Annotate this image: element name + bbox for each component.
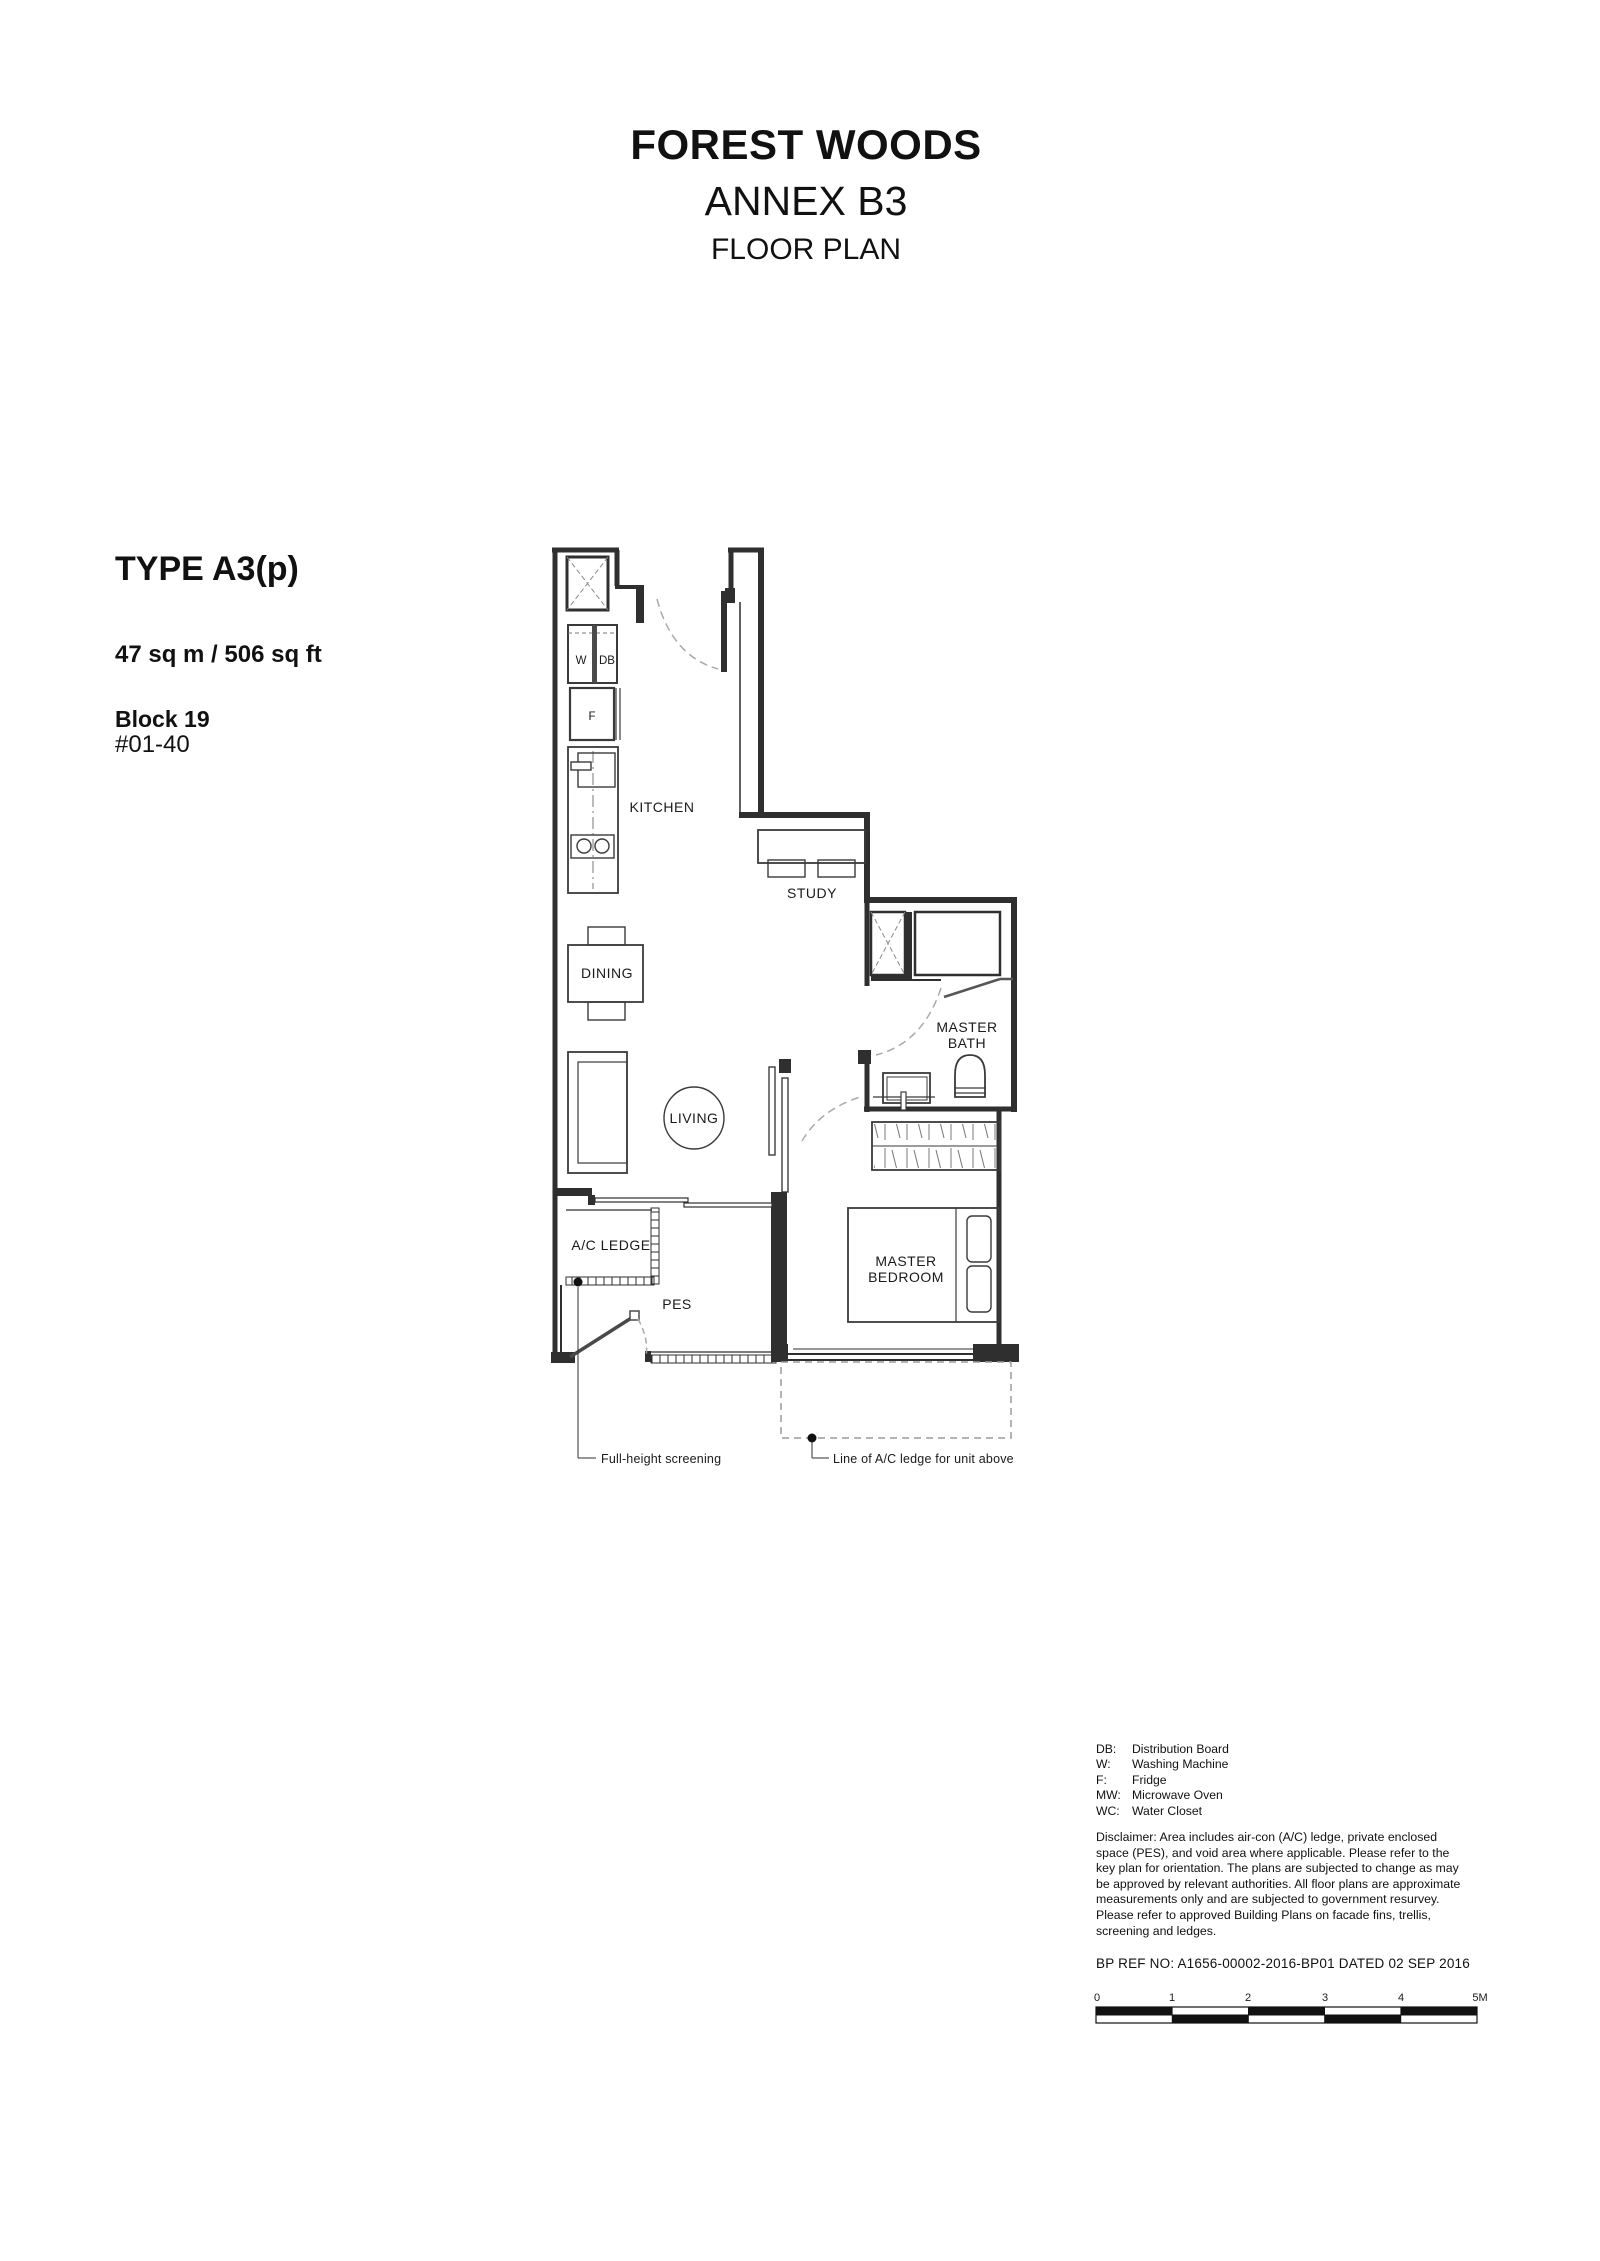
label-dining: DINING — [581, 965, 633, 981]
shower-screen — [944, 979, 1013, 997]
label-fridge: F — [588, 711, 595, 723]
ac-ledge-hatch-right — [651, 1208, 659, 1284]
sliding-window-panel — [595, 1198, 688, 1202]
pes-gate — [570, 1311, 647, 1357]
scale-label-3: 3 — [1322, 1992, 1328, 2004]
scale-label-1: 1 — [1169, 1992, 1175, 2004]
label-master-bedroom: BEDROOM — [868, 1269, 944, 1285]
legend-label: Distribution Board — [1132, 1742, 1229, 1756]
wall-living-south-stub — [556, 1188, 592, 1196]
pillow — [967, 1216, 991, 1262]
sliding-door — [769, 1067, 788, 1192]
shaft-heavy-border — [905, 912, 912, 981]
sliding-window-panel — [684, 1203, 772, 1207]
callout-leader-screening — [578, 1287, 596, 1458]
sofa — [568, 1052, 627, 1173]
callout-dot-ac-ledge — [808, 1434, 817, 1443]
label-db: DB — [599, 655, 615, 667]
bp-ref-line: BP REF NO: A1656-00002-2016-BP01 DATED 0… — [1096, 1956, 1470, 1971]
hob-burner — [577, 839, 591, 853]
callout-leaders — [574, 1278, 830, 1459]
washer-db-divider — [592, 625, 597, 683]
label-washer: W — [576, 655, 587, 667]
sink-tap — [571, 762, 591, 770]
legend-abbr: W: — [1096, 1757, 1132, 1772]
legend-row: MW:Microwave Oven — [1096, 1788, 1229, 1803]
shaft-top-left — [567, 557, 608, 610]
fridge-side-panel — [616, 688, 620, 740]
legend-abbr: DB: — [1096, 1742, 1132, 1757]
full-height-screening-strip — [651, 1352, 776, 1363]
scale-label-2: 2 — [1245, 1992, 1251, 2004]
scale-label-4: 4 — [1398, 1992, 1404, 2004]
label-master-bath: BATH — [948, 1035, 986, 1051]
pes-gate-swing-arc — [638, 1319, 647, 1356]
label-master-bedroom: MASTER — [875, 1253, 936, 1269]
wall-divider-stub — [779, 1059, 791, 1073]
wall-entry-step-right — [725, 588, 735, 603]
wardrobe — [872, 1122, 1000, 1170]
vanity-tap — [901, 1092, 906, 1110]
callout-full-height-screening: Full-height screening — [601, 1452, 721, 1466]
bedroom-window — [788, 1349, 976, 1360]
dining-chair — [588, 1002, 625, 1020]
entry-door-jamb-left — [636, 585, 644, 623]
legend-label: Fridge — [1132, 1773, 1167, 1787]
label-kitchen: KITCHEN — [630, 799, 695, 815]
wall-corner-bottom-right — [973, 1344, 1019, 1362]
sliding-door-panel — [782, 1078, 788, 1192]
master-bath-fixtures — [871, 912, 1013, 1110]
label-study: STUDY — [787, 885, 837, 901]
wall-living-bedroom-divider — [771, 1192, 787, 1362]
legend-abbr: MW: — [1096, 1788, 1132, 1803]
legend-abbr: WC: — [1096, 1804, 1132, 1819]
label-pes: PES — [662, 1296, 692, 1312]
bath-door-swing-arc — [876, 988, 941, 1055]
legend-row: DB:Distribution Board — [1096, 1742, 1229, 1757]
callout-ac-ledge-above: Line of A/C ledge for unit above — [833, 1452, 1014, 1466]
legend-label: Water Closet — [1132, 1804, 1202, 1818]
pes-gate-leaf — [570, 1315, 636, 1357]
legend-label: Washing Machine — [1132, 1757, 1228, 1771]
label-living: LIVING — [670, 1110, 719, 1126]
shower-area — [915, 912, 1000, 975]
sliding-door-panel — [769, 1067, 775, 1155]
legend: DB:Distribution Board W:Washing Machine … — [1096, 1742, 1229, 1819]
entrance-door-swing-arc — [657, 599, 718, 669]
sofa-seat — [578, 1062, 627, 1163]
kitchen-counter — [568, 747, 618, 893]
washer-db-unit — [568, 625, 617, 683]
pillow — [967, 1266, 991, 1312]
callout-leader-ac-ledge — [812, 1442, 829, 1458]
legend-abbr: F: — [1096, 1773, 1132, 1788]
legend-row: W:Washing Machine — [1096, 1757, 1229, 1772]
hob-burner — [595, 839, 609, 853]
legend-label: Microwave Oven — [1132, 1788, 1223, 1802]
entry-door-leaf — [721, 591, 727, 672]
wall-living-south-tick — [588, 1195, 595, 1205]
label-master-bath: MASTER — [936, 1019, 997, 1035]
label-ac-ledge: A/C LEDGE — [571, 1237, 650, 1253]
floor-plan-page: FOREST WOODS ANNEX B3 FLOOR PLAN TYPE A3… — [0, 0, 1600, 2261]
scale-label-0: 0 — [1094, 1992, 1100, 2004]
bath-door-leaf — [858, 1050, 871, 1064]
walkway-door-swing-arc — [802, 1097, 860, 1141]
dining-chair — [588, 927, 625, 945]
legend-row: WC:Water Closet — [1096, 1804, 1229, 1819]
scale-bar: 0 1 2 3 4 5M — [1094, 1992, 1488, 2023]
legend-row: F:Fridge — [1096, 1773, 1229, 1788]
disclaimer-text: Disclaimer: Area includes air-con (A/C) … — [1096, 1830, 1508, 1939]
scale-label-5m: 5M — [1472, 1992, 1487, 2004]
pes-sliding-window — [595, 1198, 772, 1207]
callout-dot-screening — [574, 1278, 583, 1287]
ac-above-dashed-outline — [781, 1362, 1011, 1438]
study-desk — [758, 830, 865, 877]
water-closet — [955, 1055, 985, 1097]
pes-gate-cap — [630, 1311, 639, 1320]
